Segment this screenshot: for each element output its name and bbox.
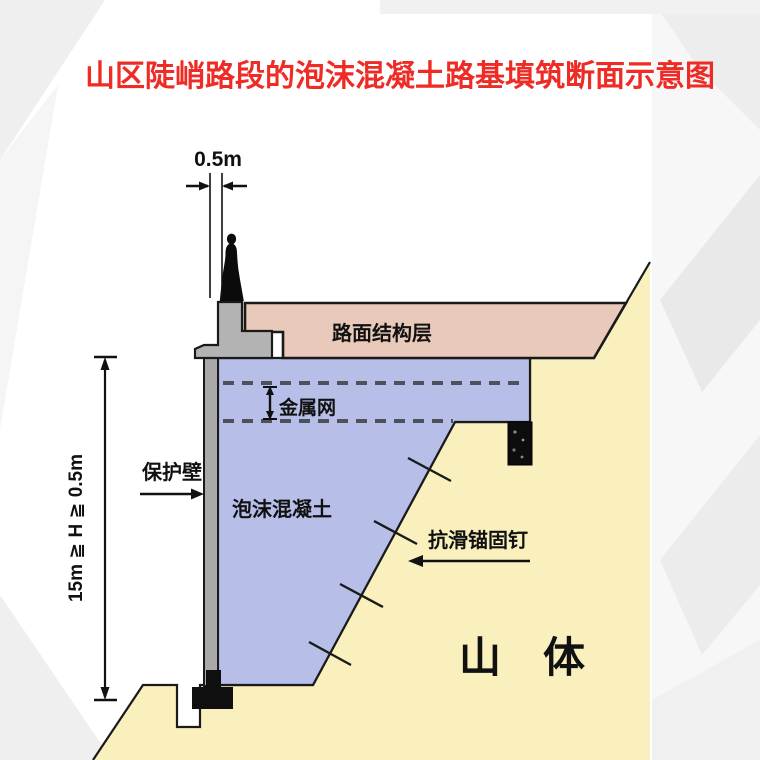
diagram-title: 山区陡峭路段的泡沫混凝土路基填筑断面示意图 xyxy=(85,59,715,93)
anchor-nails-label: 抗滑锚固钉 xyxy=(428,528,528,552)
cross-section-diagram: 山区陡峭路段的泡沫混凝土路基填筑断面示意图 xyxy=(0,0,760,760)
anchor-block xyxy=(508,422,532,465)
metal-mesh-label: 金属网 xyxy=(278,396,336,419)
pavement-label: 路面结构层 xyxy=(332,321,432,345)
pavement-layer-region xyxy=(245,303,626,358)
protection-wall-region xyxy=(204,345,218,686)
diagram-page: 山区陡峭路段的泡沫混凝土路基填筑断面示意图 xyxy=(0,0,760,760)
height-dimension-label: 15m ≧ H ≧ 0.5m xyxy=(66,454,87,602)
protection-wall-callout: 保护壁 xyxy=(140,460,204,500)
mountain-label: 山 体 xyxy=(459,634,585,681)
foam-concrete-label: 泡沫混凝土 xyxy=(232,497,332,521)
width-dimension-label: 0.5m xyxy=(194,148,242,171)
protection-wall-label: 保护壁 xyxy=(141,460,202,484)
